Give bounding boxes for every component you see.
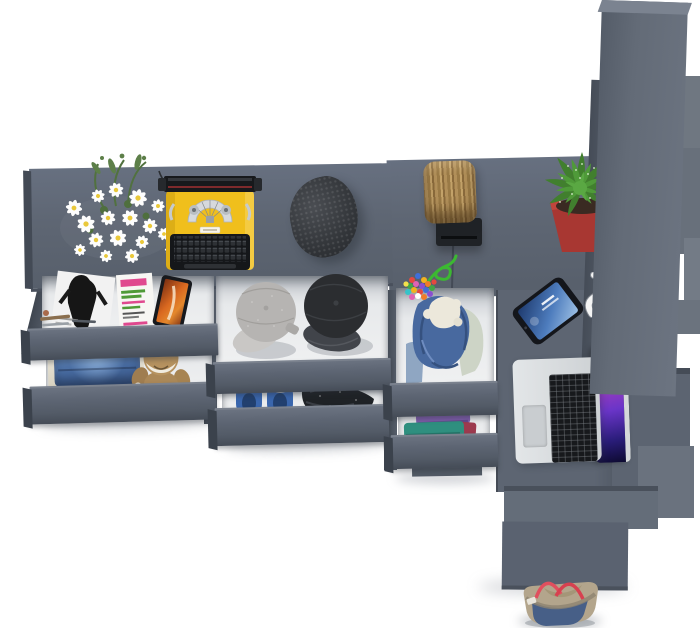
denim-hoodie: [398, 290, 494, 390]
drawer-front: [391, 433, 499, 469]
laptop-base: [512, 357, 602, 464]
log-stool: [423, 160, 477, 224]
typewriter: [158, 170, 262, 274]
desk-side-edge: [23, 171, 33, 290]
drawer-front: [28, 323, 219, 360]
drawer-front: [213, 358, 392, 394]
text-magazine: [116, 273, 156, 333]
wardrobe-panel: [590, 0, 688, 397]
drawer-front: [390, 381, 499, 417]
laptop-trackpad: [522, 405, 547, 448]
bead-keychain: [398, 246, 478, 302]
wardrobe-step-shelf: [676, 300, 700, 334]
drawer-front: [30, 381, 217, 424]
media-phone: [152, 274, 193, 330]
black-cap: [301, 274, 368, 355]
drawer-front: [215, 404, 390, 446]
tote-bag: [514, 568, 606, 628]
furniture-render: [0, 0, 700, 628]
